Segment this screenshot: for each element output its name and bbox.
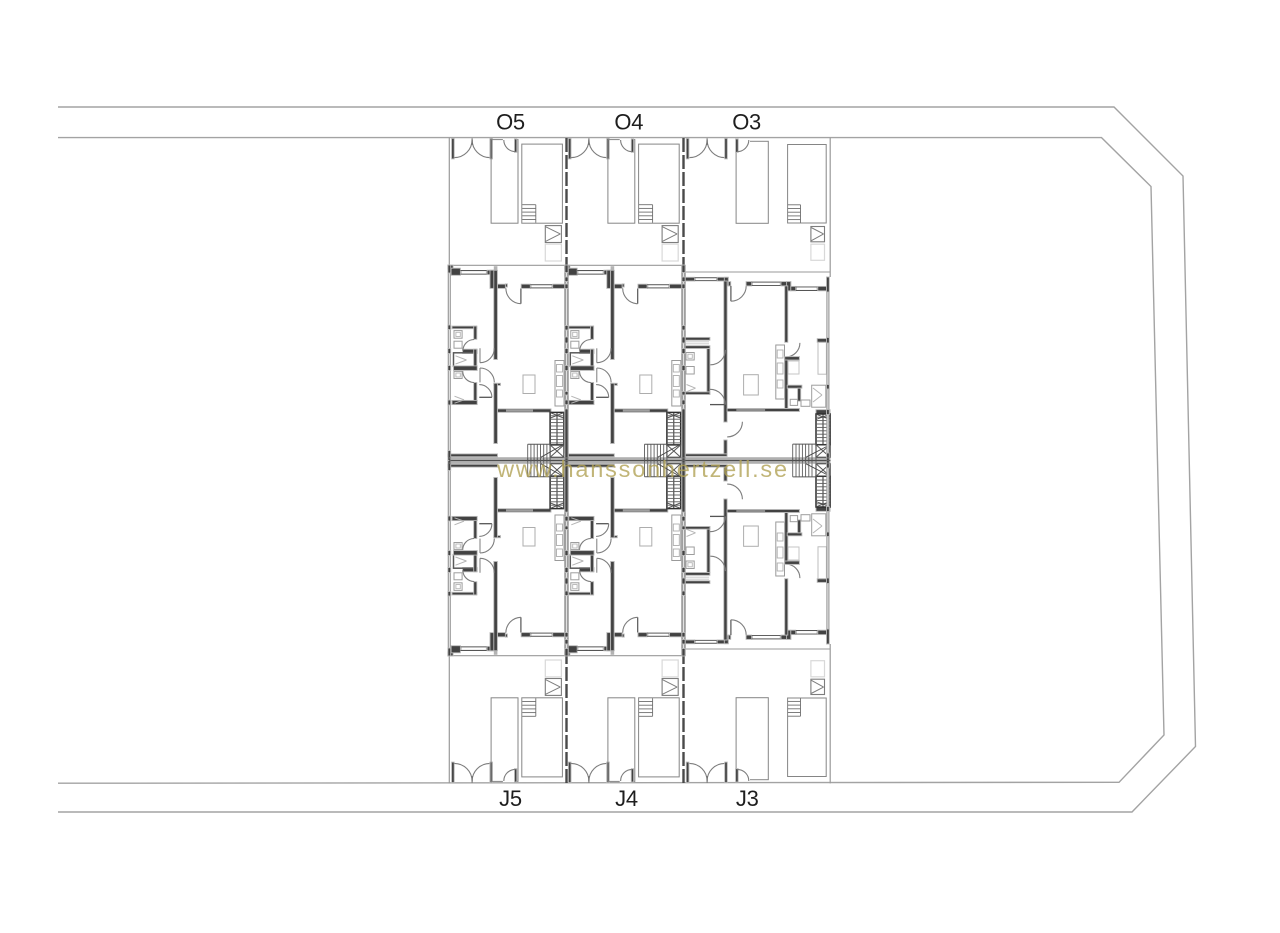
svg-text:O4: O4 <box>614 109 643 134</box>
svg-text:O3: O3 <box>732 109 761 134</box>
svg-text:O5: O5 <box>496 109 525 134</box>
svg-text:J5: J5 <box>499 786 522 811</box>
svg-text:J4: J4 <box>615 786 638 811</box>
svg-text:www.hanssonhertzell.se: www.hanssonhertzell.se <box>496 456 789 482</box>
svg-text:J3: J3 <box>736 786 759 811</box>
